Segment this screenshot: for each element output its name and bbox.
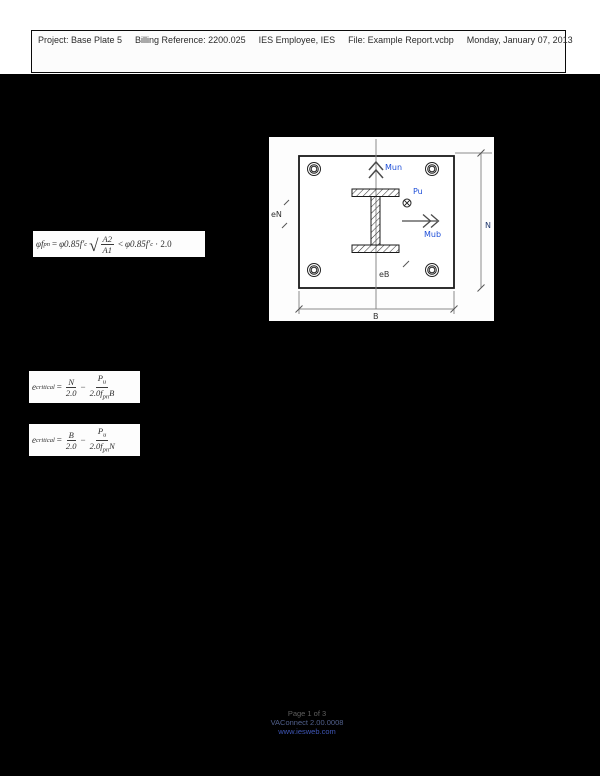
- page-number: Page 1 of 3: [0, 709, 600, 718]
- en-label: eN: [271, 210, 282, 219]
- mun-label: Mun: [385, 163, 402, 172]
- pu-label: Pu: [413, 187, 423, 196]
- fraction-denominator: 2.0: [66, 388, 77, 398]
- area-ratio-fraction: A2 A1: [101, 234, 114, 255]
- fraction-numerator: A2: [101, 234, 114, 246]
- fraction-denominator: 2.0: [66, 441, 77, 451]
- header-date: Monday, January 07, 2013: [467, 35, 573, 45]
- formula-lhs-sub: critical: [36, 384, 55, 391]
- fraction-numerator: N: [66, 377, 76, 389]
- equals-sign: =: [57, 382, 62, 392]
- b-dimension-label: B: [373, 312, 379, 321]
- second-fraction: Pu 2.0fpnN: [90, 426, 115, 454]
- eb-label: eB: [379, 270, 389, 279]
- formula-lhs-sub: critical: [36, 437, 55, 444]
- fraction-denominator: 2.0fpnN: [90, 441, 115, 454]
- mub-label: Mub: [424, 230, 441, 239]
- fraction-denominator: 2.0fpnB: [90, 388, 115, 401]
- n-dimension-label: N: [485, 221, 491, 230]
- formula-bearing-strength: φfpn = φ0.85f′c √ A2 A1 < φ0.85f′c · 2.0: [33, 231, 205, 257]
- base-plate-diagram: Mun Pu Mub eN eB: [269, 137, 494, 321]
- minus-sign: −: [80, 382, 85, 392]
- base-plate-drawing: Mun Pu Mub eN eB: [269, 137, 494, 321]
- header-licensee: IES Employee, IES: [259, 35, 336, 45]
- second-fraction: Pu 2.0fpnB: [90, 373, 115, 401]
- less-than-sign: <: [118, 239, 123, 249]
- report-page: Project: Base Plate 5 Billing Reference:…: [0, 0, 600, 776]
- fraction-denominator: A1: [103, 245, 112, 255]
- equals-sign: =: [52, 239, 57, 249]
- formula-lhs-sub: pn: [43, 241, 50, 248]
- en-tick-marks: [282, 200, 289, 228]
- header-billing-reference: Billing Reference: 2200.025: [135, 35, 246, 45]
- formula-term2: φ0.85f′: [125, 239, 150, 249]
- header-project: Project: Base Plate 5: [38, 35, 122, 45]
- formula-term2-sub: c: [150, 241, 153, 248]
- formula-factor: · 2.0: [155, 239, 172, 249]
- equals-sign: =: [57, 435, 62, 445]
- radical-sign: √: [89, 236, 98, 256]
- formula-ecritical-b: ecritical = B 2.0 − Pu 2.0fpnN: [29, 424, 140, 456]
- fraction-numerator: Pu: [96, 373, 108, 388]
- fraction-numerator: Pu: [96, 426, 108, 441]
- first-fraction: B 2.0: [66, 430, 77, 451]
- minus-sign: −: [80, 435, 85, 445]
- first-fraction: N 2.0: [66, 377, 77, 398]
- formula-term1: φ0.85f′: [59, 239, 84, 249]
- header-file: File: Example Report.vcbp: [348, 35, 454, 45]
- website-link[interactable]: www.iesweb.com: [0, 727, 600, 736]
- application-version: VAConnect 2.00.0008: [0, 718, 600, 727]
- page-footer: Page 1 of 3 VAConnect 2.00.0008 www.iesw…: [0, 709, 600, 736]
- report-header: Project: Base Plate 5 Billing Reference:…: [31, 30, 566, 73]
- formula-term1-sub: c: [84, 241, 87, 248]
- fraction-numerator: B: [67, 430, 76, 442]
- formula-ecritical-n: ecritical = N 2.0 − Pu 2.0fpnB: [29, 371, 140, 403]
